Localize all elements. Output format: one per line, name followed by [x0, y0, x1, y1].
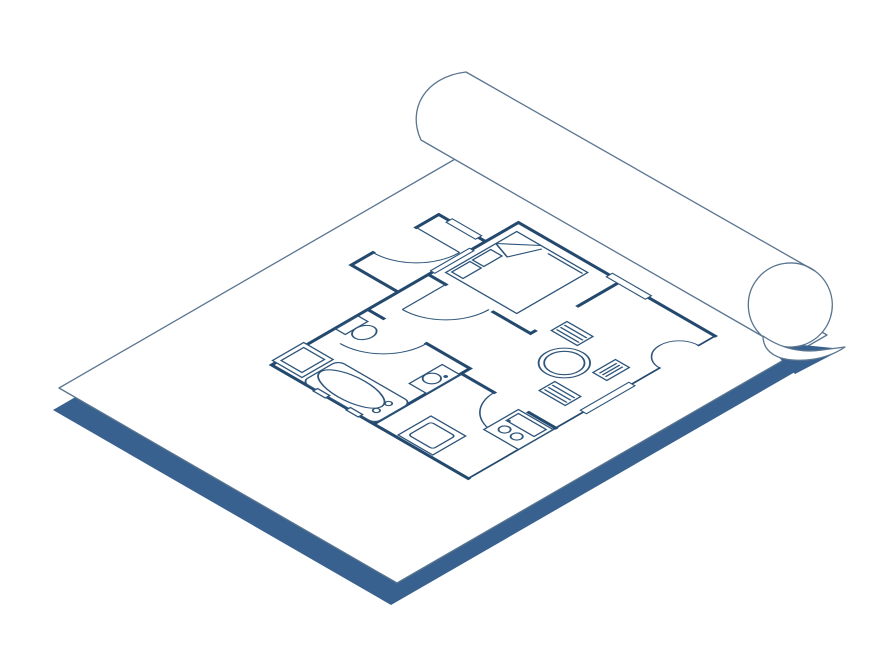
blueprint-sheet [59, 140, 827, 584]
blueprint-illustration: Isometric rolled blueprint sheet with ap… [0, 0, 878, 648]
illustration-canvas: Isometric rolled blueprint sheet with ap… [0, 0, 878, 648]
